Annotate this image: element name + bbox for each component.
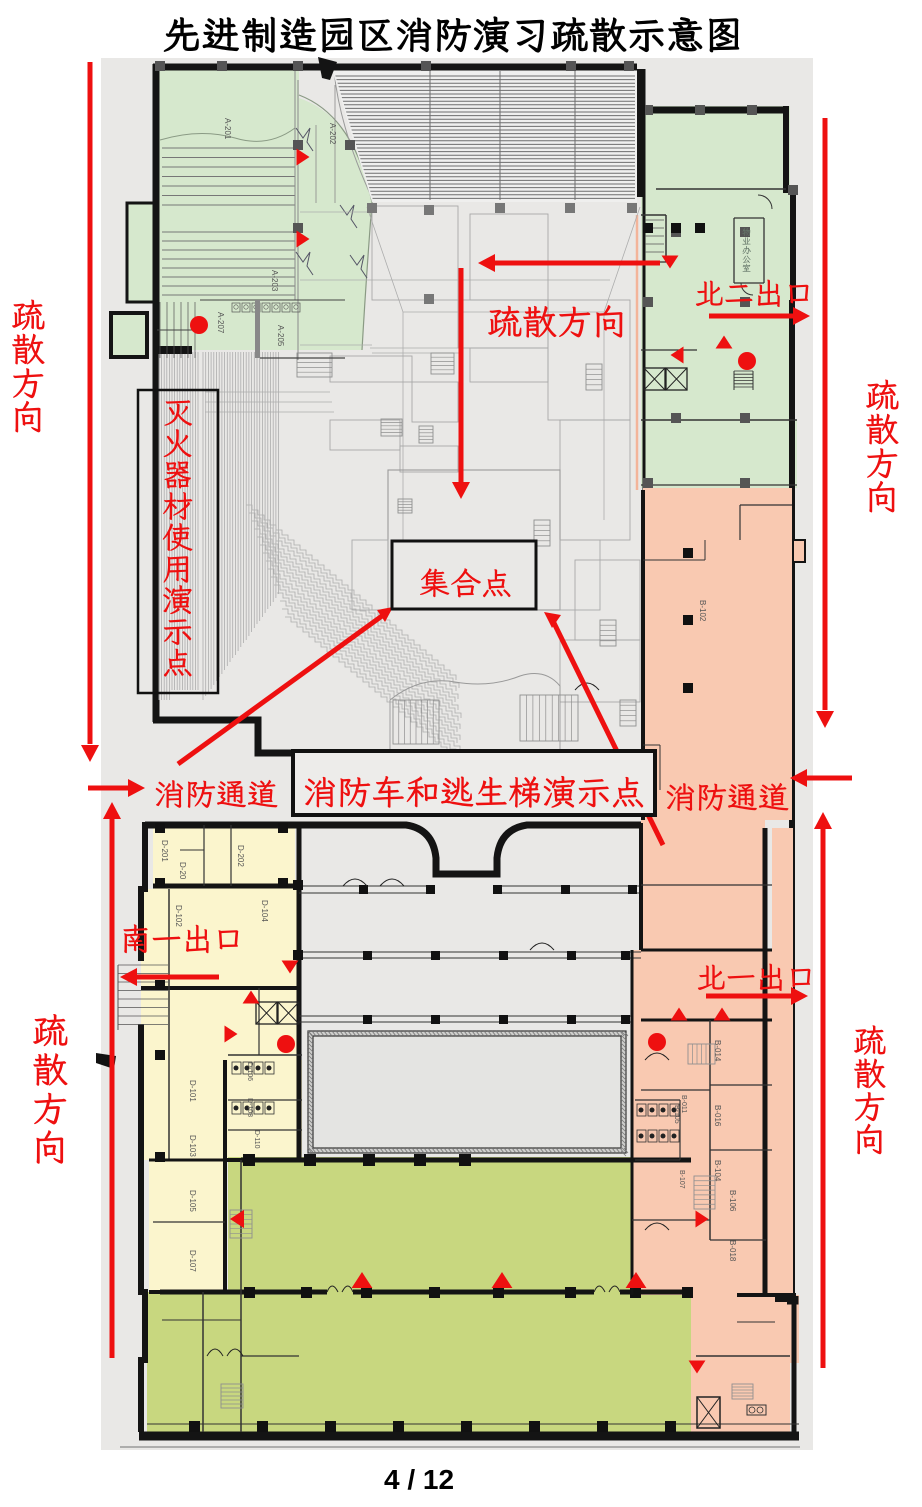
svg-text:D-108: D-108 <box>246 1098 253 1117</box>
svg-text:A-202: A-202 <box>328 123 337 145</box>
svg-text:D-104: D-104 <box>260 900 269 922</box>
svg-text:D-103: D-103 <box>188 1135 197 1157</box>
svg-text:D-201: D-201 <box>160 840 169 862</box>
svg-text:B-102: B-102 <box>698 600 707 622</box>
svg-text:4 / 12: 4 / 12 <box>384 1464 454 1495</box>
svg-text:B-014: B-014 <box>713 1040 722 1062</box>
svg-text:B-107: B-107 <box>678 1170 685 1189</box>
svg-text:B-018: B-018 <box>728 1240 737 1262</box>
svg-text:B-016: B-016 <box>713 1105 722 1127</box>
svg-text:D-107: D-107 <box>188 1250 197 1272</box>
svg-text:D-101: D-101 <box>188 1080 197 1102</box>
svg-text:D-106: D-106 <box>246 1062 253 1081</box>
svg-text:B-106: B-106 <box>728 1190 737 1212</box>
svg-text:B-011: B-011 <box>680 1095 687 1113</box>
svg-text:A-205: A-205 <box>276 325 285 347</box>
svg-text:D-20: D-20 <box>178 862 187 880</box>
svg-text:D-202: D-202 <box>236 845 245 867</box>
svg-text:B-104: B-104 <box>713 1160 722 1182</box>
svg-text:D-102: D-102 <box>174 905 183 927</box>
svg-text:D-110: D-110 <box>253 1130 260 1149</box>
svg-text:B-105: B-105 <box>673 1105 680 1124</box>
svg-text:A-201: A-201 <box>223 118 232 140</box>
svg-text:A-203: A-203 <box>270 270 279 292</box>
svg-text:A-207: A-207 <box>216 312 225 334</box>
svg-text:D-105: D-105 <box>188 1190 197 1212</box>
